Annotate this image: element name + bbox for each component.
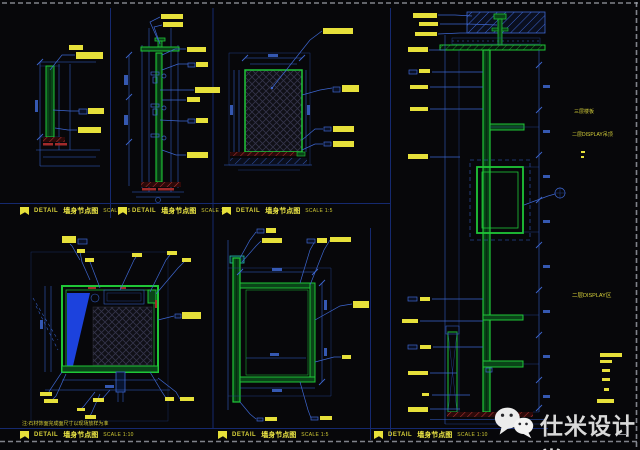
detail-name: 墙身节点图 bbox=[161, 206, 196, 216]
detail-label: DETAIL bbox=[34, 432, 58, 438]
detail-e-plan-detail bbox=[31, 236, 201, 421]
detail-label: DETAIL bbox=[132, 208, 156, 214]
section-bubble bbox=[524, 187, 566, 205]
detail-scale: SCALE 1:5 bbox=[305, 208, 332, 214]
detail-a-wall-section bbox=[35, 45, 104, 166]
detail-marker-icon bbox=[218, 431, 227, 439]
titleblock-6: DETAIL 墙身节点图 SCALE 1:10 bbox=[374, 430, 488, 440]
detail-label: DETAIL bbox=[236, 208, 260, 214]
detail-label: DETAIL bbox=[232, 432, 256, 438]
blue-wedge-fill bbox=[67, 293, 90, 366]
note-text: 注:石材饰面完成面尺寸以现场放样为准 bbox=[22, 420, 108, 427]
detail-marker-icon bbox=[222, 207, 231, 215]
sheet-dashed-border bbox=[0, 2, 640, 448]
detail-marker-icon bbox=[118, 207, 127, 215]
titleblock-4: DETAIL 墙身节点图 SCALE 1:10 bbox=[20, 430, 134, 440]
detail-label: DETAIL bbox=[34, 208, 58, 214]
detail-name: 墙身节点图 bbox=[265, 206, 300, 216]
vertical-note-stack bbox=[597, 353, 622, 403]
detail-name: 墙身节点图 bbox=[63, 206, 98, 216]
detail-scale: SCALE 1:5 bbox=[301, 432, 328, 438]
titleblock-5: DETAIL 墙身节点图 SCALE 1:5 bbox=[218, 430, 329, 440]
titleblock-3: DETAIL 墙身节点图 SCALE 1:5 bbox=[222, 206, 333, 216]
titleblock-1: DETAIL 墙身节点图 SCALE 1:5 bbox=[20, 206, 131, 216]
detail-f-box-section bbox=[228, 228, 369, 421]
detail-d-full-height-section bbox=[402, 12, 622, 424]
annotation-ceiling: 二层DISPLAY吊顶 bbox=[572, 132, 613, 138]
detail-name: 墙身节点图 bbox=[63, 430, 98, 440]
dim-ticks bbox=[536, 62, 550, 411]
wechat-icon bbox=[492, 404, 538, 440]
detail-c-panel-elevation bbox=[224, 28, 359, 170]
detail-scale: SCALE 1:10 bbox=[457, 432, 488, 438]
detail-marker-icon bbox=[20, 431, 29, 439]
detail-b-wall-section bbox=[124, 14, 220, 203]
detail-marker-icon bbox=[374, 431, 383, 439]
page-corner-mark bbox=[618, 426, 627, 435]
detail-marker-icon bbox=[20, 207, 29, 215]
detail-name: 墙身节点图 bbox=[261, 430, 296, 440]
annotation-area: 二层DISPLAY区 bbox=[572, 293, 611, 299]
titleblock-2: DETAIL 墙身节点图 SCALE 1:5 bbox=[118, 206, 229, 216]
detail-label: DETAIL bbox=[388, 432, 412, 438]
detail-name: 墙身节点图 bbox=[417, 430, 452, 440]
drawing-linework bbox=[0, 0, 640, 450]
annotation-upper-floor: 三层楼板 bbox=[574, 109, 594, 115]
detail-scale: SCALE 1:10 bbox=[103, 432, 134, 438]
cad-sheet: DETAIL 墙身节点图 SCALE 1:5 DETAIL 墙身节点图 SCAL… bbox=[0, 0, 640, 450]
